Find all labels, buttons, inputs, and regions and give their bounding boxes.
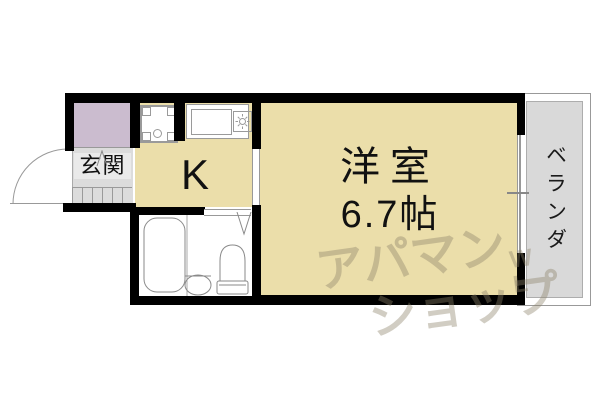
kitchen-label: K	[150, 148, 240, 202]
pan-corner	[142, 107, 151, 116]
wall-kitchen-room-upper	[252, 103, 261, 149]
wall-bath-top	[130, 207, 205, 215]
toilet-tank-icon	[217, 281, 248, 294]
wall-closet-right	[130, 103, 140, 148]
k-door-frame-left	[252, 149, 253, 205]
wall-bath-left	[130, 207, 139, 304]
stove-icon	[233, 111, 252, 132]
wall-main-bottom	[252, 295, 525, 305]
k-door-frame-right	[259, 149, 260, 205]
toilet-icon	[220, 245, 245, 285]
stove-burner-icon	[235, 113, 250, 130]
pan-corner	[142, 132, 151, 141]
entrance-arrow-icon	[96, 150, 108, 167]
drain-icon	[153, 129, 162, 138]
main-room-label: 洋室	[270, 142, 510, 192]
wall-right-upper	[517, 93, 525, 135]
kitchen-sink-icon	[191, 109, 232, 135]
bath-door-v-icon	[235, 212, 255, 236]
wall-right-lower	[517, 253, 525, 305]
wall-kitchen-separator	[174, 103, 185, 141]
wall-bath-bottom	[130, 296, 261, 305]
sink-icon	[185, 275, 211, 295]
wall-top	[65, 93, 525, 103]
kitchen-counter	[186, 104, 249, 139]
door-swing-arc-icon	[10, 146, 71, 207]
wall-entrance-bottom	[63, 203, 136, 212]
balcony-label: ベランダ	[526, 101, 583, 298]
main-room-size-label: 6.7帖	[265, 190, 515, 240]
floor-plan: ベランダ	[0, 0, 600, 400]
washer-pan-icon	[140, 105, 178, 143]
bathtub-icon	[144, 218, 185, 292]
door-leaf-line	[10, 203, 69, 204]
closet-area	[74, 103, 131, 148]
window-line	[519, 135, 521, 253]
wall-left-upper	[65, 93, 74, 151]
